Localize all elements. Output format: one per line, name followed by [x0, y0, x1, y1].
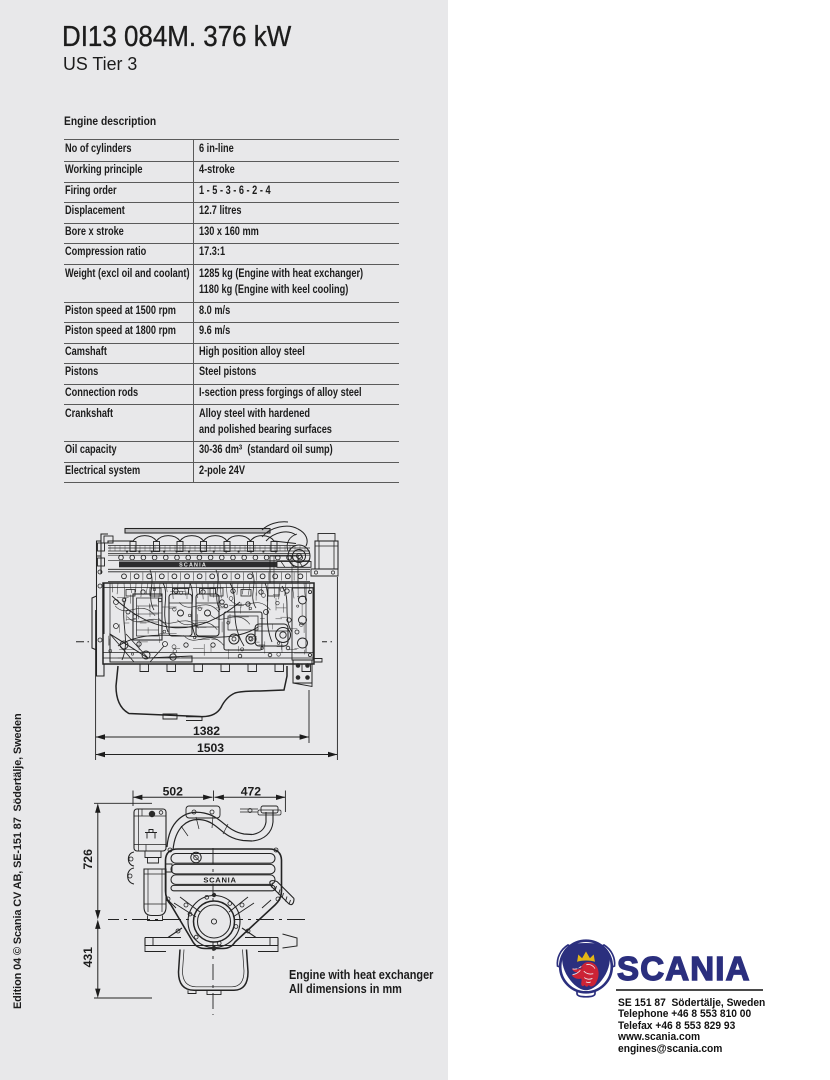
svg-text:431: 431: [81, 947, 95, 968]
svg-text:1382: 1382: [193, 724, 220, 738]
svg-text:726: 726: [81, 849, 95, 870]
svg-text:SCANIA: SCANIA: [203, 876, 236, 885]
svg-text:1503: 1503: [197, 741, 224, 755]
svg-text:502: 502: [163, 784, 184, 798]
svg-text:472: 472: [241, 784, 262, 798]
svg-text:SCANIA: SCANIA: [179, 563, 207, 569]
